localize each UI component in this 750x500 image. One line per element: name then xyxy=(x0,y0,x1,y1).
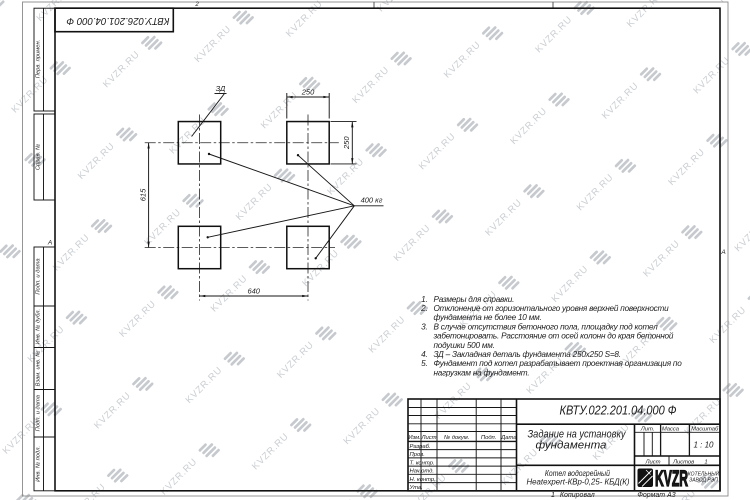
svg-text:KVZR.RU: KVZR.RU xyxy=(209,273,250,314)
svg-text:Т. контр.: Т. контр. xyxy=(410,460,435,466)
svg-text:Лит.: Лит. xyxy=(640,426,655,432)
svg-text:Лист: Лист xyxy=(421,435,437,441)
svg-text:250: 250 xyxy=(301,88,315,97)
svg-text:KVZR.RU: KVZR.RU xyxy=(625,0,666,30)
svg-text:Н. контр.: Н. контр. xyxy=(410,477,436,483)
svg-text:Подп. и дата: Подп. и дата xyxy=(36,258,42,295)
svg-text:Подп.: Подп. xyxy=(481,435,496,441)
svg-text:2.: 2. xyxy=(420,304,427,313)
svg-text:1: 1 xyxy=(551,492,555,499)
svg-text:ЗД: ЗД xyxy=(216,84,226,93)
svg-text:ЗАВОД РЭП: ЗАВОД РЭП xyxy=(689,478,718,484)
svg-text:640: 640 xyxy=(247,287,260,296)
svg-text:KVZR.RU: KVZR.RU xyxy=(192,24,233,65)
svg-text:подушки 500 мм.: подушки 500 мм. xyxy=(434,341,495,350)
svg-text:Нач.отд.: Нач.отд. xyxy=(410,469,434,475)
svg-text:Утв.: Утв. xyxy=(409,485,423,491)
svg-text:Перв. примен.: Перв. примен. xyxy=(36,40,42,79)
svg-text:3.: 3. xyxy=(421,322,427,331)
svg-text:KVZR.RU: KVZR.RU xyxy=(666,147,707,188)
svg-text:4.: 4. xyxy=(421,350,427,359)
svg-text:KVZR.RU: KVZR.RU xyxy=(284,0,325,40)
svg-text:KVZR.RU: KVZR.RU xyxy=(417,131,458,172)
svg-text:KVZR.RU: KVZR.RU xyxy=(9,74,50,115)
svg-text:Дата: Дата xyxy=(500,435,517,441)
svg-text:KVZR.RU: KVZR.RU xyxy=(575,172,616,213)
svg-text:KVZR.RU: KVZR.RU xyxy=(550,263,591,304)
svg-text:KVZR.RU: KVZR.RU xyxy=(600,80,641,121)
svg-text:KVZR.RU: KVZR.RU xyxy=(259,90,300,131)
svg-text:KVZR.RU: KVZR.RU xyxy=(641,238,682,279)
svg-text:KVZR.RU: KVZR.RU xyxy=(250,431,291,472)
svg-text:ЗД – Закладная деталь фундамен: ЗД – Закладная деталь фундамента 250х250… xyxy=(434,350,621,359)
svg-text:Лист: Лист xyxy=(645,460,661,466)
svg-text:KVZR: KVZR xyxy=(655,467,688,492)
svg-text:KVZR.RU: KVZR.RU xyxy=(101,49,142,90)
svg-text:KVZR.RU: KVZR.RU xyxy=(234,181,275,222)
svg-text:400 кг: 400 кг xyxy=(361,195,383,204)
svg-text:Справ. №: Справ. № xyxy=(36,144,42,170)
svg-text:Масштаб: Масштаб xyxy=(691,426,719,432)
svg-text:Масса: Масса xyxy=(662,426,680,432)
svg-text:Пров.: Пров. xyxy=(410,452,425,458)
svg-text:KVZR.RU: KVZR.RU xyxy=(533,14,574,55)
svg-text:KVZR.RU: KVZR.RU xyxy=(184,365,225,406)
svg-text:Инв. № дубл.: Инв. № дубл. xyxy=(36,309,42,345)
svg-text:KVZR.RU: KVZR.RU xyxy=(51,232,92,273)
svg-text:Взам. инв. №: Взам. инв. № xyxy=(36,351,42,387)
svg-text:Фундамент под котел разрабатыв: Фундамент под котел разрабатывает проект… xyxy=(434,359,683,368)
svg-text:Изм.: Изм. xyxy=(408,435,420,441)
svg-text:KVZR.RU: KVZR.RU xyxy=(325,156,366,197)
svg-text:KVZR.RU: KVZR.RU xyxy=(76,140,117,181)
svg-text:Размеры для справки.: Размеры для справки. xyxy=(434,295,515,304)
svg-text:1 : 10: 1 : 10 xyxy=(693,440,714,449)
svg-text:нагрузкам на фундамент.: нагрузкам на фундамент. xyxy=(434,368,530,377)
svg-text:забетонировать. Расстояние от: забетонировать. Расстояние от осей колон… xyxy=(433,332,674,341)
svg-text:А: А xyxy=(720,249,725,256)
svg-text:KVZR.RU: KVZR.RU xyxy=(508,106,549,147)
svg-text:КВТУ.026.201.04.000 Ф: КВТУ.026.201.04.000 Ф xyxy=(66,15,169,26)
svg-text:KVZR.RU: KVZR.RU xyxy=(341,406,382,447)
svg-text:Инв. № подл.: Инв. № подл. xyxy=(36,446,42,482)
svg-text:№ докум.: № докум. xyxy=(444,434,470,441)
svg-text:KVZR.RU: KVZR.RU xyxy=(483,197,524,238)
svg-text:KVZR.RU: KVZR.RU xyxy=(691,55,732,96)
svg-text:Копировал: Копировал xyxy=(560,492,595,499)
svg-text:KVZR.RU: KVZR.RU xyxy=(350,65,391,106)
svg-text:KVZR.RU: KVZR.RU xyxy=(733,213,750,254)
svg-text:5.: 5. xyxy=(421,359,427,368)
svg-text:В случае отсутствия бетонного: В случае отсутствия бетонного пола, площ… xyxy=(434,322,659,331)
svg-text:Heatexpert-КВр-0,25- КБД(К): Heatexpert-КВр-0,25- КБД(К) xyxy=(527,477,630,486)
svg-text:А: А xyxy=(47,240,52,247)
svg-text:1.: 1. xyxy=(421,295,427,304)
svg-text:фундамента не более 10 мм.: фундамента не более 10 мм. xyxy=(434,313,542,322)
svg-text:KVZR.RU: KVZR.RU xyxy=(92,390,133,431)
svg-text:КОТЕЛЬНЫЙ: КОТЕЛЬНЫЙ xyxy=(688,470,720,478)
svg-text:250: 250 xyxy=(342,136,351,150)
svg-text:KVZR.RU: KVZR.RU xyxy=(367,314,408,355)
svg-text:KVZR.RU: KVZR.RU xyxy=(275,339,316,380)
svg-text:Разраб.: Разраб. xyxy=(410,444,431,450)
svg-text:KVZR.RU: KVZR.RU xyxy=(392,222,433,263)
svg-text:Отклонение от горизонтального: Отклонение от горизонтального уровня вер… xyxy=(434,304,670,313)
svg-text:KVZR.RU: KVZR.RU xyxy=(442,39,483,80)
svg-text:Формат А3: Формат А3 xyxy=(637,492,675,499)
svg-text:КВТУ.022.201.04.000 Ф: КВТУ.022.201.04.000 Ф xyxy=(560,404,677,418)
svg-text:KVZR.RU: KVZR.RU xyxy=(117,298,158,339)
svg-text:615: 615 xyxy=(139,188,148,201)
svg-text:Подп. и дата: Подп. и дата xyxy=(36,394,42,431)
svg-text:фундамента: фундамента xyxy=(536,439,607,451)
svg-text:2: 2 xyxy=(194,2,199,8)
svg-text:1: 1 xyxy=(704,460,707,466)
svg-text:KVZR.RU: KVZR.RU xyxy=(26,324,67,365)
svg-text:Листов: Листов xyxy=(672,460,694,466)
